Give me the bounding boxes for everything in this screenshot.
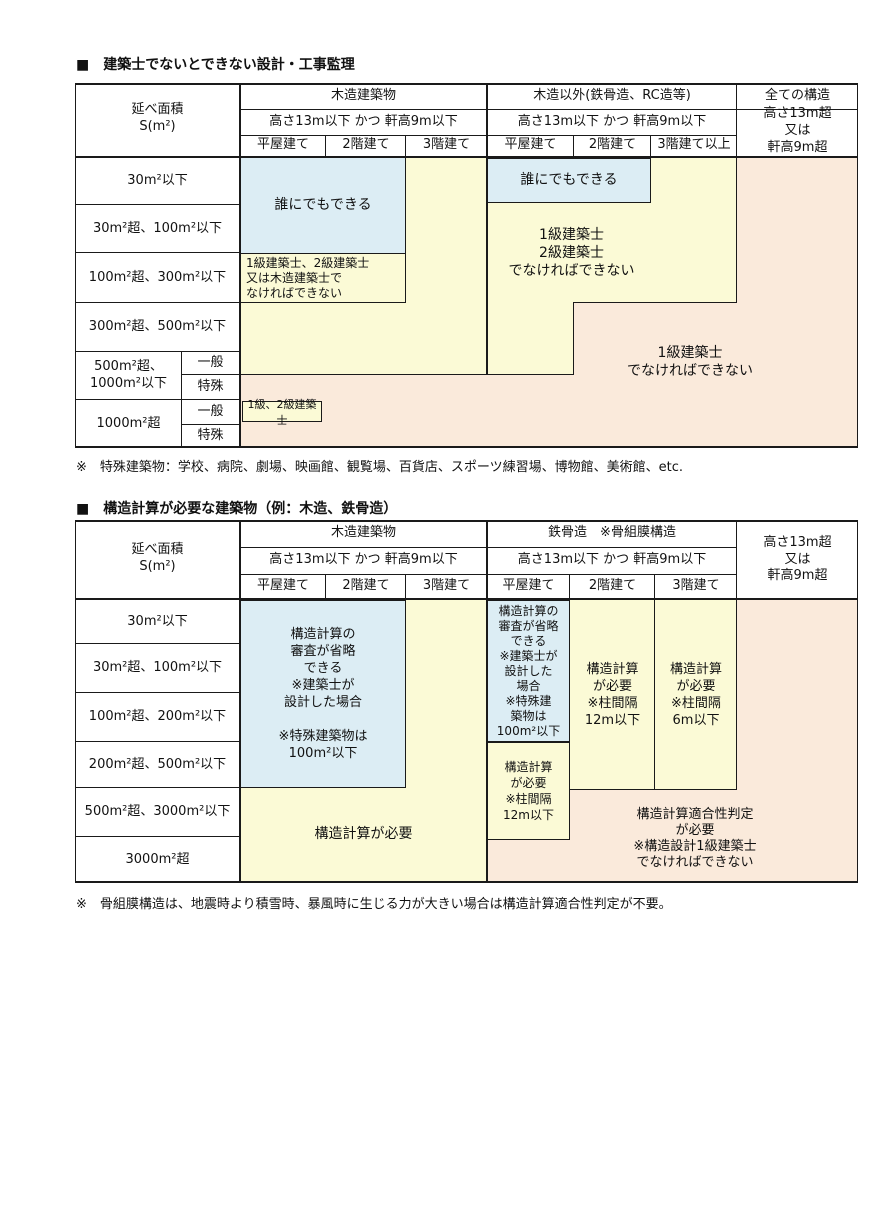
table2-wood-col-2: 2階建て — [326, 573, 406, 599]
table2-over-height-header: 高さ13m超 又は 軒高9m超 — [737, 524, 858, 596]
table1-area-header: 延べ面積 S(m²) — [75, 86, 240, 152]
table1-cell-anyone-nonwood: 誰にでもできる — [487, 158, 651, 203]
table2-cell-wood-req: 構造計算が必要 — [240, 788, 487, 881]
table2-cell-steel-req-6: 構造計算 が必要 ※柱間隔 6m以下 — [655, 610, 737, 780]
table1-nonwood-group-header: 木造以外(鉄骨造、RC造等) — [487, 83, 737, 109]
border-line — [569, 789, 737, 790]
table2-steel-group-header: 鉄骨造 ※骨組膜構造 — [487, 520, 737, 547]
table1-wood-height-cond: 高さ13m以下 かつ 軒高9m以下 — [240, 109, 487, 135]
table1-subrow-general: 一般 — [181, 352, 240, 375]
table2-cell-steel-req-12-two-story: 構造計算 が必要 ※柱間隔 12m以下 — [570, 610, 655, 780]
table1-wood-col-2: 2階建て — [326, 134, 406, 156]
table1-cell-lv12-or-wood-box: 1級建築士、2級建築士 又は木造建築士で なければできない — [240, 253, 406, 303]
table1-row-label: 500m²超、 1000m²以下 — [75, 352, 182, 400]
table2-wood-group-header: 木造建築物 — [240, 520, 487, 547]
table2-cell-steel-skip: 構造計算の 審査が省略 できる ※建築士が 設計した 場合 ※特殊建 築物は 1… — [487, 600, 570, 742]
table1-wood-group-header: 木造建築物 — [240, 83, 487, 109]
table2-wood-col-3: 3階建て — [406, 573, 487, 599]
table1-subrow-special: 特殊 — [181, 375, 240, 399]
table1-row-label: 30m²以下 — [75, 158, 240, 205]
table2-steel-col-3: 3階建て — [655, 573, 737, 599]
table1-title: ■ 建築士でないとできない設計・工事監理 — [76, 54, 355, 74]
table2-cell-judge: 構造計算適合性判定 が必要 ※構造設計1級建築士 でなければできない — [558, 799, 832, 879]
table2-steel-height-cond: 高さ13m以下 かつ 軒高9m以下 — [487, 547, 737, 574]
table1-row-label: 300m²超、500m²以下 — [75, 303, 240, 352]
table1-cell-lv12-or-wood: 1級建築士、2級建築士 又は木造建築士で なければできない — [241, 254, 374, 303]
table1-nonwood-col-1: 平屋建て — [487, 134, 574, 156]
table1-subrow-special: 特殊 — [181, 425, 240, 447]
table2-row-label: 100m²超、200m²以下 — [75, 693, 240, 742]
table2-title: ■ 構造計算が必要な建築物（例：木造、鉄骨造） — [76, 498, 397, 518]
table1-cell-lv12: 1級建築士 2級建築士 でなければできない — [406, 203, 737, 303]
table1-wood-col-3: 3階建て — [406, 134, 487, 156]
table1-row-label: 100m²超、300m²以下 — [75, 253, 240, 303]
table1-footnote: ※ 特殊建築物：学校、病院、劇場、映画館、観覧場、百貨店、スポーツ練習場、博物館… — [76, 456, 683, 475]
table2-wood-height-cond: 高さ13m以下 かつ 軒高9m以下 — [240, 547, 487, 574]
table1-nonwood-height-cond: 高さ13m以下 かつ 軒高9m以下 — [487, 109, 737, 135]
table2-footnote: ※ 骨組膜構造は、地震時より積雪時、暴風時に生じる力が大きい場合は構造計算適合性… — [76, 893, 672, 912]
table2-row-label: 30m²超、100m²以下 — [75, 644, 240, 693]
table1-nonwood-col-3: 3階建て以上 — [651, 134, 737, 156]
document-page: ■ 建築士でないとできない設計・工事監理 延べ面積 S(m²) 木造建築物 木造… — [0, 0, 870, 1231]
table1-row-label: 1000m²超 — [75, 400, 182, 448]
table2-row-label: 3000m²超 — [75, 837, 240, 883]
table1-cell-anyone-wood: 誰にでもできる — [240, 158, 406, 253]
table1-wood-col-1: 平屋建て — [240, 134, 326, 156]
table1-row-label: 30m²超、100m²以下 — [75, 205, 240, 253]
table1-cell-lv12-small: 1級、2級建築士 — [242, 401, 322, 422]
table1-over-height-header: 高さ13m超 又は 軒高9m超 — [737, 107, 858, 156]
table2-steel-col-2: 2階建て — [570, 573, 655, 599]
table2-cell-wood-skip: 構造計算の 審査が省略 できる ※建築士が 設計した場合 ※特殊建築物は 100… — [240, 600, 406, 788]
table2-steel-col-1: 平屋建て — [487, 573, 570, 599]
table2-wood-col-1: 平屋建て — [240, 573, 326, 599]
table1-region-yellow-c — [406, 303, 574, 375]
border-line — [240, 374, 574, 375]
table1-nonwood-col-2: 2階建て — [574, 134, 651, 156]
table1-subrow-general: 一般 — [181, 400, 240, 424]
table1-cell-lv1: 1級建築士 でなければできない — [560, 338, 820, 386]
table2-row-label: 200m²超、500m²以下 — [75, 742, 240, 788]
table2-row-label: 30m²以下 — [75, 600, 240, 644]
table2-area-header: 延べ面積 S(m²) — [75, 526, 240, 592]
table2-row-label: 500m²超、3000m²以下 — [75, 788, 240, 837]
